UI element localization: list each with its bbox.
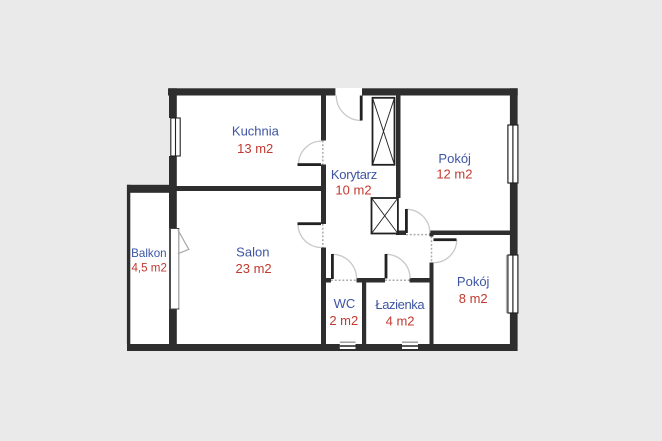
svg-text:4 m2: 4 m2 <box>386 313 415 328</box>
svg-text:Pokój: Pokój <box>457 274 490 289</box>
svg-text:WC: WC <box>334 296 356 311</box>
svg-text:8 m2: 8 m2 <box>459 291 488 306</box>
svg-text:Łazienka: Łazienka <box>375 297 425 312</box>
svg-text:Salon: Salon <box>236 245 269 260</box>
svg-text:Kuchnia: Kuchnia <box>232 123 280 138</box>
svg-text:23 m2: 23 m2 <box>236 261 272 276</box>
svg-text:13 m2: 13 m2 <box>237 141 273 156</box>
svg-text:Korytarz: Korytarz <box>331 167 377 182</box>
svg-text:Pokój: Pokój <box>438 151 471 166</box>
svg-text:10 m2: 10 m2 <box>335 182 371 197</box>
svg-text:Balkon: Balkon <box>131 247 166 260</box>
svg-text:2 m2: 2 m2 <box>329 313 358 328</box>
svg-text:4,5 m2: 4,5 m2 <box>131 262 166 275</box>
svg-text:12 m2: 12 m2 <box>436 167 472 182</box>
